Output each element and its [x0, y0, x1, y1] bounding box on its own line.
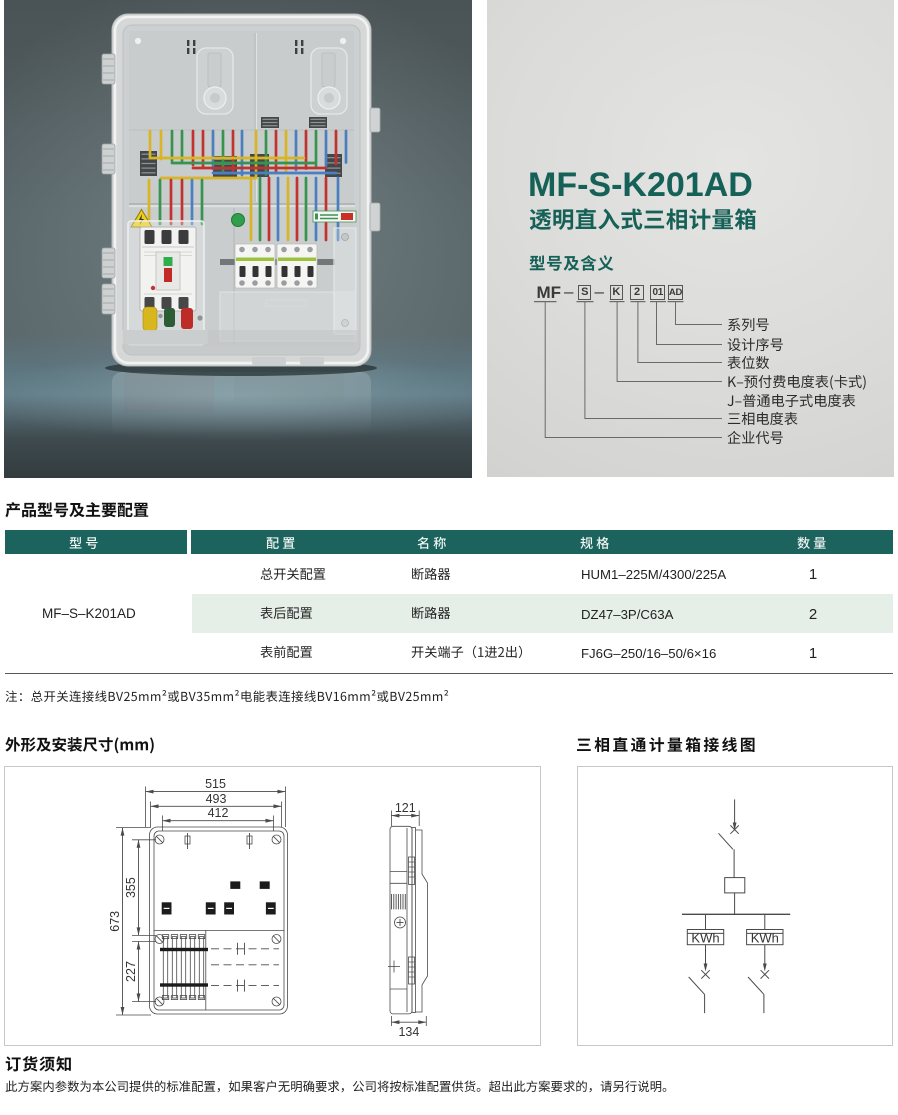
svg-text:134: 134 [398, 1025, 419, 1039]
svg-text:515: 515 [205, 777, 226, 791]
svg-text:412: 412 [207, 806, 228, 820]
svg-text:121: 121 [394, 801, 415, 815]
svg-text:355: 355 [124, 877, 138, 898]
svg-text:KWh: KWh [691, 931, 719, 946]
svg-text:673: 673 [108, 911, 122, 932]
svg-text:227: 227 [124, 961, 138, 982]
svg-text:KWh: KWh [750, 931, 778, 946]
svg-text:493: 493 [205, 792, 226, 806]
